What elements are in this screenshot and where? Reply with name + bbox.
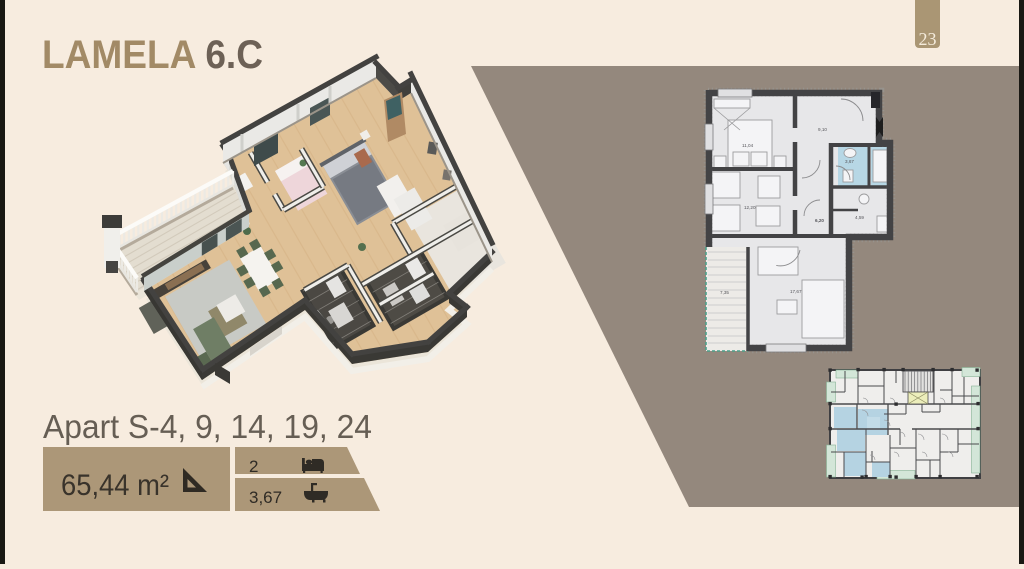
svg-text:6,20: 6,20: [815, 218, 824, 223]
svg-text:3,67: 3,67: [845, 159, 854, 164]
svg-text:7,35: 7,35: [720, 290, 729, 295]
svg-text:2: 2: [249, 457, 258, 476]
svg-text:LAMELA 6.C: LAMELA 6.C: [42, 33, 263, 77]
svg-text:11,04: 11,04: [742, 143, 754, 148]
svg-text:17,67: 17,67: [790, 289, 802, 294]
svg-text:23: 23: [919, 29, 937, 49]
svg-text:65,44 m²: 65,44 m²: [61, 469, 169, 502]
svg-text:Apart S-4, 9, 14, 19, 24: Apart S-4, 9, 14, 19, 24: [43, 408, 372, 445]
svg-text:4,59: 4,59: [855, 215, 864, 220]
svg-text:12,20: 12,20: [744, 205, 756, 210]
svg-text:9,10: 9,10: [818, 127, 827, 132]
svg-text:3,67: 3,67: [249, 488, 282, 507]
